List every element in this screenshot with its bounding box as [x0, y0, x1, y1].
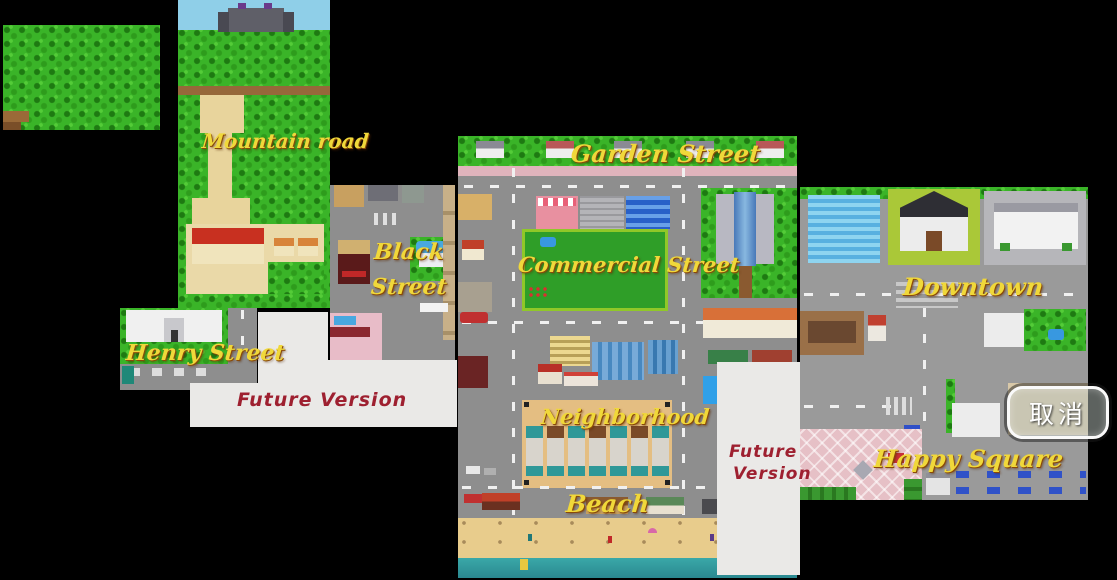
vehicle: [466, 466, 480, 474]
village-house: [298, 238, 318, 256]
future-version-label-left: Future Version: [237, 391, 407, 410]
apartment-wing: [756, 194, 774, 264]
crosswalk: [886, 397, 912, 415]
map-label-neighborhood: Neighborhood: [540, 406, 710, 427]
shop-sign: [420, 303, 448, 312]
dirt-path: [3, 111, 29, 122]
apartment-unit: [568, 426, 585, 476]
park-pond: [540, 237, 556, 247]
building: [338, 240, 370, 254]
building: [368, 185, 398, 201]
red-roof-shop: [538, 364, 562, 384]
beach-umbrella: [648, 528, 657, 533]
cancel-button-label: 取消: [1029, 395, 1087, 431]
house: [476, 141, 504, 158]
vehicle: [484, 468, 496, 475]
blue-glass-building: [648, 340, 678, 374]
apartment-unit: [526, 426, 543, 476]
castle-tower-right: [283, 12, 294, 32]
wood-hut: [3, 122, 21, 130]
beach-person: [608, 536, 612, 543]
map-label-commercial-street: Commercial Street: [517, 254, 740, 275]
apartment-unit: [610, 426, 627, 476]
map-label-henry-street: Henry Street: [125, 342, 286, 364]
mountain-road-map-tile[interactable]: [178, 0, 330, 308]
crosswalk: [130, 368, 218, 376]
map-label-street: Street: [370, 276, 448, 298]
building: [334, 185, 364, 207]
red-bus: [460, 312, 488, 323]
forest-map-tile[interactable]: [3, 25, 160, 130]
building-windows: [342, 271, 366, 277]
bush-row: [904, 479, 922, 500]
castle-tower-left: [218, 12, 229, 32]
dark-red-building: [458, 356, 488, 388]
parked-cars-row: [956, 487, 1086, 494]
orange-roof-building: [703, 308, 797, 338]
building: [402, 185, 424, 203]
mountain-path: [192, 198, 250, 224]
map-label-garden-street: Garden Street: [570, 142, 761, 166]
crosswalk: [374, 213, 396, 225]
bush-row: [800, 487, 856, 500]
apartment-unit: [547, 426, 564, 476]
church-door: [926, 231, 942, 251]
castle-icon: [228, 8, 284, 32]
apartment-unit: [652, 426, 669, 476]
building-row: [443, 185, 455, 340]
map-label-downtown: Downtown: [902, 275, 1044, 299]
red-roof-shop: [482, 493, 520, 510]
green-roof-shop: [646, 497, 684, 514]
castle-flag: [238, 3, 246, 9]
mountain-path: [200, 95, 244, 133]
flower-bed: [528, 286, 550, 299]
blue-building: [626, 196, 670, 229]
dark-roof: [330, 327, 370, 337]
future-version-label-right-line1: Future: [729, 444, 797, 461]
shop-front: [564, 372, 598, 386]
blue-glass-building: [592, 342, 644, 380]
red-vehicle: [464, 494, 482, 503]
block-corner: [524, 402, 529, 407]
park-pond: [1048, 329, 1064, 340]
bush: [1062, 243, 1072, 251]
building: [458, 282, 492, 312]
shop-awning: [538, 198, 576, 206]
village-grass: [268, 262, 324, 294]
map-label-happy-square: Happy Square: [873, 447, 1064, 471]
white-shop: [926, 473, 950, 495]
future-version-label-right-line2: Version: [733, 466, 812, 483]
beach-person: [710, 534, 714, 541]
apartment-unit: [631, 426, 648, 476]
road-dashes: [923, 308, 926, 438]
castle-flag: [264, 3, 272, 9]
pond: [808, 195, 880, 263]
blue-awning: [334, 316, 356, 325]
block-corner: [665, 480, 670, 485]
bush: [1000, 243, 1010, 251]
map-label-beach: Beach: [565, 492, 650, 516]
striped-building: [550, 336, 590, 366]
brown-path: [739, 266, 752, 298]
red-roof-house: [462, 240, 484, 260]
boat: [520, 559, 528, 570]
small-shop: [868, 315, 886, 341]
apartment-unit: [589, 426, 606, 476]
dumpster: [122, 366, 134, 384]
column-building: [952, 403, 1000, 437]
building: [458, 194, 492, 220]
village-house: [274, 238, 294, 256]
beach-person: [528, 534, 532, 541]
red-roof-building: [192, 228, 264, 264]
map-label-black: Black: [373, 241, 445, 263]
terrace-steps: [580, 196, 624, 229]
world-map-screen: Future Version: [0, 0, 1117, 580]
mountain-fence: [178, 86, 330, 95]
cancel-button[interactable]: 取消: [1007, 386, 1109, 439]
map-label-mountain-road: Mountain road: [201, 131, 369, 151]
dark-red-building: [338, 254, 370, 284]
block-corner: [524, 480, 529, 485]
store-goods: [808, 321, 856, 343]
